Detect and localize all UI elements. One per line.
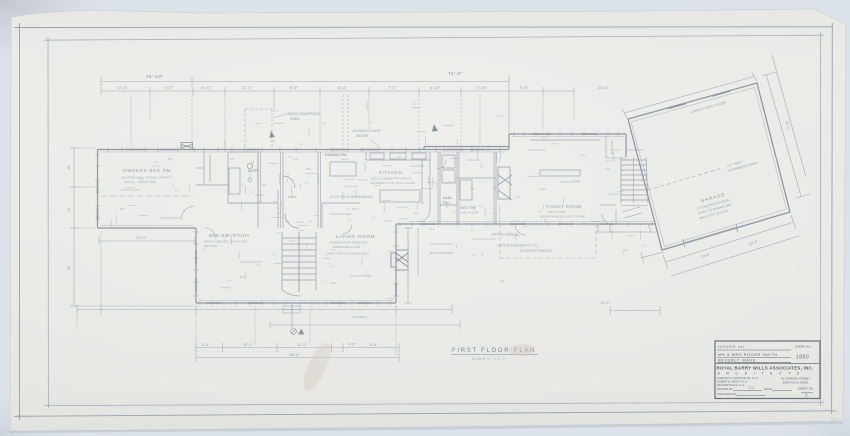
svg-text:LATTICE SCREEN 4'-0" O.C.: LATTICE SCREEN 4'-0" O.C.	[497, 244, 539, 248]
svg-text:ELASTED WALL TO WALL CARPET: ELASTED WALL TO WALL CARPET	[122, 176, 171, 180]
svg-text:12-6: 12-6	[364, 272, 370, 276]
svg-text:SM 1: SM 1	[830, 416, 840, 421]
svg-text:4-6: 4-6	[414, 211, 419, 215]
svg-text:9-4: 9-4	[139, 177, 143, 181]
svg-text:4" x 8" SOLID BEAM ABOVE: 4" x 8" SOLID BEAM ABOVE	[330, 195, 373, 199]
svg-text:10-2: 10-2	[352, 207, 358, 211]
svg-text:WOOD CABINETS, FORMICA: WOOD CABINETS, FORMICA	[371, 177, 412, 181]
svg-text:6-8: 6-8	[306, 167, 311, 171]
svg-text:28'-10": 28'-10"	[146, 74, 163, 79]
svg-text:6'-0": 6'-0"	[165, 85, 174, 90]
svg-text:10'-0": 10'-0"	[243, 343, 253, 347]
svg-text:8-0: 8-0	[369, 120, 373, 124]
svg-text:SHEET NO.: SHEET NO.	[798, 387, 814, 391]
svg-text:ARCHITECTS: ARCHITECTS	[718, 372, 806, 376]
svg-text:5-2: 5-2	[168, 157, 173, 161]
svg-text:ROYAL BARRY WILLS ASSOCIATES,: ROYAL BARRY WILLS ASSOCIATES, INC.	[717, 365, 814, 370]
svg-text:3-6: 3-6	[605, 167, 610, 171]
svg-text:DATE: DATE	[764, 387, 772, 391]
svg-text:6-0: 6-0	[642, 244, 646, 248]
svg-text:3-0: 3-0	[365, 133, 369, 137]
svg-text:12-4: 12-4	[540, 187, 546, 191]
svg-text:8-0: 8-0	[471, 228, 475, 232]
svg-text:8-0: 8-0	[228, 279, 232, 283]
svg-text:3-6: 3-6	[286, 171, 290, 175]
svg-text:8-0: 8-0	[309, 220, 313, 224]
svg-text:RM.: RM.	[443, 201, 450, 205]
svg-text:8-6: 8-6	[120, 207, 125, 211]
svg-text:8'-6": 8'-6"	[202, 343, 210, 347]
svg-text:8'-6": 8'-6"	[370, 343, 378, 347]
svg-text:BATH: BATH	[248, 169, 258, 173]
svg-text:OAK FLOOR: OAK FLOOR	[548, 210, 566, 214]
svg-text:ROBERT E. MINOT, A.I.A.: ROBERT E. MINOT, A.I.A.	[717, 380, 748, 384]
svg-text:1-10: 1-10	[452, 180, 458, 184]
svg-text:RANDOM PINE PANELING: RANDOM PINE PANELING	[330, 241, 368, 245]
svg-text:9-4: 9-4	[423, 201, 427, 205]
svg-text:FAMILY ROOM: FAMILY ROOM	[546, 204, 582, 209]
svg-text:9-4: 9-4	[322, 122, 326, 126]
svg-text:4-0: 4-0	[500, 279, 505, 283]
svg-text:DRAWN BY: DRAWN BY	[717, 387, 733, 391]
svg-text:WOOD SHELVES, OAK FLOOR: WOOD SHELVES, OAK FLOOR	[204, 240, 248, 244]
svg-text:9-0: 9-0	[240, 275, 245, 279]
svg-text:9'-10": 9'-10"	[477, 85, 488, 90]
svg-text:9-4: 9-4	[272, 253, 276, 257]
svg-text:7-0: 7-0	[470, 187, 475, 191]
svg-text:BED RM. STUDY: BED RM. STUDY	[209, 233, 250, 238]
svg-text:COVERED TERRACE: COVERED TERRACE	[520, 249, 552, 253]
svg-text:9'-8": 9'-8"	[520, 85, 529, 90]
svg-text:OWNERS BED RM.: OWNERS BED RM.	[123, 168, 173, 173]
svg-text:2-8: 2-8	[447, 180, 451, 184]
svg-text:HOUSE for: HOUSE for	[718, 344, 745, 349]
svg-text:3-6: 3-6	[347, 219, 351, 223]
svg-text:16-0: 16-0	[330, 281, 336, 285]
svg-text:13': 13'	[66, 207, 71, 212]
svg-text:2-2: 2-2	[321, 278, 325, 282]
svg-text:LIVING ROOM: LIVING ROOM	[336, 234, 375, 239]
svg-text:16': 16'	[66, 165, 71, 170]
svg-text:12'-0": 12'-0"	[297, 343, 307, 347]
svg-text:OAK FLOOR: OAK FLOOR	[461, 211, 479, 215]
svg-text:3-0: 3-0	[154, 160, 158, 164]
svg-text:BOOK SHELVES: BOOK SHELVES	[430, 251, 453, 255]
svg-text:COUNTER TOPS, VINYL FLOOR: COUNTER TOPS, VINYL FLOOR	[370, 181, 416, 185]
svg-text:11'-0": 11'-0"	[242, 85, 252, 90]
svg-text:74'-4": 74'-4"	[448, 71, 462, 76]
svg-text:LAUNDRY CHUTE: LAUNDRY CHUTE	[352, 129, 381, 133]
svg-text:4-6: 4-6	[479, 179, 483, 183]
svg-text:KITCHEN: KITCHEN	[379, 170, 402, 175]
svg-text:MR & MRS ROGER SMITH: MR & MRS ROGER SMITH	[718, 352, 777, 357]
svg-text:5-0: 5-0	[479, 204, 483, 208]
svg-text:11'-6": 11'-6"	[337, 85, 347, 90]
svg-text:9-4: 9-4	[275, 109, 279, 113]
svg-text:8-0: 8-0	[347, 213, 351, 217]
svg-text:3-0: 3-0	[395, 176, 399, 180]
svg-text:DINING RM.: DINING RM.	[325, 152, 347, 157]
svg-text:14'-0": 14'-0"	[600, 301, 610, 305]
svg-text:6'-10": 6'-10"	[430, 85, 441, 90]
svg-text:COMM. NO.: COMM. NO.	[795, 345, 812, 349]
svg-text:3-0: 3-0	[262, 183, 267, 187]
svg-text:2-8: 2-8	[516, 195, 520, 199]
svg-text:LINED WITH OLD HAND RAILS: LINED WITH OLD HAND RAILS	[326, 252, 369, 256]
svg-text:MUD: MUD	[443, 196, 452, 200]
svg-text:BOSTON 14, MASS.: BOSTON 14, MASS.	[783, 381, 809, 385]
svg-text:2-2: 2-2	[250, 190, 254, 194]
svg-text:3-6: 3-6	[624, 248, 628, 252]
svg-text:9-4: 9-4	[346, 208, 350, 212]
svg-text:12-6: 12-6	[284, 220, 290, 224]
svg-text:12-6: 12-6	[227, 285, 233, 289]
svg-text:BEVERLY, MASS.: BEVERLY, MASS.	[718, 358, 757, 363]
svg-text:1-10: 1-10	[303, 181, 309, 185]
svg-text:12'-6": 12'-6"	[117, 85, 128, 90]
svg-text:8'-6": 8'-6"	[290, 85, 299, 90]
svg-text:WOOD PANELED KNOTTY PINE: WOOD PANELED KNOTTY PINE	[540, 215, 585, 219]
svg-text:SCALE ¼" = 1'-0": SCALE ¼" = 1'-0"	[472, 357, 507, 361]
svg-text:4-6: 4-6	[175, 188, 179, 192]
svg-text:LATTICE SCREEN: LATTICE SCREEN	[491, 233, 519, 237]
svg-text:WD SHELF: WD SHELF	[352, 315, 368, 319]
svg-text:JGD: JGD	[748, 386, 755, 390]
svg-text:54'-8": 54'-8"	[290, 353, 300, 357]
svg-text:9-4: 9-4	[299, 142, 303, 146]
svg-text:CHECKED BY: CHECKED BY	[717, 392, 737, 396]
svg-text:22'-0": 22'-0"	[136, 235, 147, 240]
svg-text:CHARLES C. HANCOCK JR., A.I.A.: CHARLES C. HANCOCK JR., A.I.A.	[717, 376, 759, 380]
svg-text:2-4: 2-4	[230, 157, 235, 161]
svg-text:WOOD EQUIPMENT: WOOD EQUIPMENT	[287, 112, 322, 116]
svg-text:SHED: SHED	[290, 117, 300, 121]
svg-text:4'-6": 4'-6"	[348, 343, 356, 347]
svg-text:26': 26'	[66, 265, 71, 270]
svg-text:3-0: 3-0	[329, 264, 333, 268]
svg-text:1880: 1880	[796, 355, 809, 361]
svg-text:12-6: 12-6	[371, 216, 377, 220]
svg-text:7'-0": 7'-0"	[388, 85, 397, 90]
svg-text:HALL: HALL	[288, 195, 298, 199]
svg-text:WIDE PINE FLOOR: WIDE PINE FLOOR	[333, 245, 361, 249]
svg-text:5-0: 5-0	[611, 159, 615, 163]
svg-text:6-2: 6-2	[430, 227, 435, 231]
svg-text:1-10: 1-10	[513, 219, 519, 223]
svg-text:WD TRIM: WD TRIM	[204, 244, 218, 248]
svg-text:8-0: 8-0	[293, 157, 297, 161]
svg-text:20'-6": 20'-6"	[598, 85, 609, 90]
svg-text:4-6: 4-6	[472, 253, 476, 257]
svg-text:4'-10": 4'-10"	[201, 85, 212, 90]
